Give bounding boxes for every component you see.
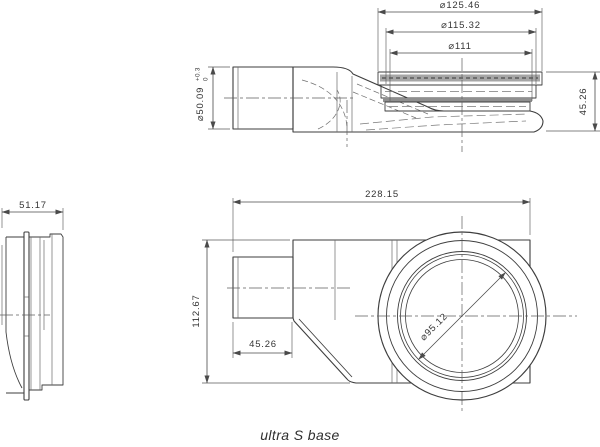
side-seal-strip (383, 98, 532, 102)
dim-overall-length-value: 228.15 (365, 189, 399, 200)
side-hidden-base (360, 114, 528, 124)
dim-flange-diameter-value: ⌀115.32 (441, 20, 481, 31)
dim-outlet-tolerance-lower: 0 (203, 77, 210, 81)
plan-view: 228.15 112.67 45.26 ⌀95.12 (191, 189, 577, 414)
dim-insert-diameter-value: ⌀111 (448, 41, 471, 52)
dim-depth-value: 51.17 (19, 200, 47, 211)
dim-outlet-stub-length: 45.26 (233, 322, 292, 358)
end-flange-plate (24, 232, 29, 400)
dim-overall-width-value: 112.67 (191, 294, 202, 327)
end-view: 51.17 (0, 200, 63, 400)
technical-drawing: ⌀50.09 +0.3 0 ⌀125.46 ⌀115.32 ⌀111 (0, 0, 600, 447)
plan-chamfer-inner (299, 319, 352, 377)
dim-depth: 51.17 (2, 200, 63, 230)
end-body-outline (29, 234, 63, 390)
dim-grate-diameter-value: ⌀125.46 (440, 0, 480, 11)
drawing-canvas: ⌀50.09 +0.3 0 ⌀125.46 ⌀115.32 ⌀111 (0, 0, 600, 447)
dim-height: 45.26 (546, 72, 600, 131)
dim-outlet-tolerance-upper: +0.3 (195, 67, 202, 81)
dim-height-value: 45.26 (578, 88, 589, 116)
end-left-arc (6, 332, 22, 388)
side-hidden-funnel (302, 80, 347, 128)
side-hidden-base (366, 121, 526, 130)
dim-flange-diameter: ⌀115.32 (386, 20, 536, 84)
dim-overall-width: 112.67 (191, 240, 350, 383)
dim-grate-diameter: ⌀125.46 (378, 0, 542, 71)
dim-outlet-stub-length-value: 45.26 (249, 339, 277, 350)
dim-insert-diameter: ⌀111 (390, 41, 532, 101)
drawing-caption: ultra S base (260, 427, 340, 443)
plan-outlet-pipe (233, 257, 293, 318)
dim-outlet-diameter-value: ⌀50.09 (195, 87, 206, 121)
side-elevation-view: ⌀50.09 +0.3 0 ⌀125.46 ⌀115.32 ⌀111 (195, 0, 600, 152)
